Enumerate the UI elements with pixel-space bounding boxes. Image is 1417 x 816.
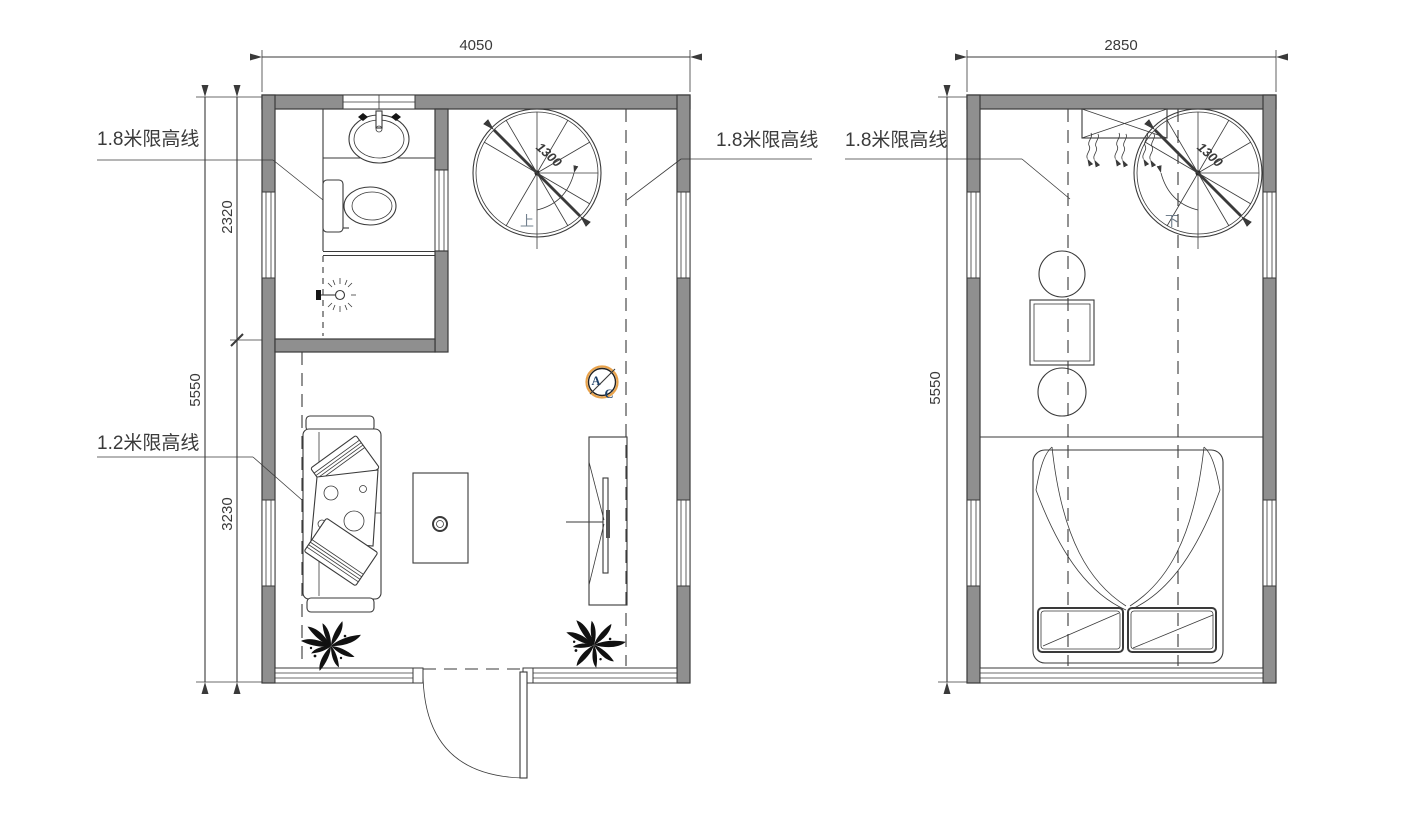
wall-right [1263,95,1276,683]
door-jamb-left [413,668,423,683]
limit-label-12: 1.2米限高线 [97,432,199,454]
wall-right [677,95,690,683]
bed-pillows [1038,608,1216,652]
dim-width: 2850 [1104,37,1137,54]
wall-top [967,95,1276,109]
ac-letter-a: A [591,374,600,388]
window-left-upper [262,192,275,278]
stool [1038,368,1086,416]
window-bottom-left [275,668,413,683]
wall-top [262,95,690,109]
window-left-upper [967,192,980,278]
window-left-lower [262,500,275,586]
bathroom-partition-wall-upper [435,109,448,170]
limit-label-18: 1.8米限高线 [845,129,947,151]
window-bottom-right [533,668,677,683]
window-top [343,95,415,109]
coffee-table [413,473,468,563]
tv-mount [606,510,610,538]
door-leaf [520,672,527,778]
dim-height-upper: 2320 [219,200,236,233]
sofa-armrest-bottom [307,598,374,612]
bathroom-partition-glazing [435,170,448,251]
limit-label-18-left: 1.8米限高线 [97,128,199,150]
window-right-lower [677,500,690,586]
window-right-upper [1263,192,1276,278]
dim-height-lower: 3230 [219,497,236,530]
window-bottom [980,668,1263,683]
dim-height-total: 5550 [187,373,204,406]
paper-background [0,0,1417,816]
floorplan-drawing: 1300 上 [0,0,1417,816]
bed [1033,447,1223,663]
wall-left [967,95,980,683]
stair-direction-down: 下 [1165,213,1179,229]
dim-height-total: 5550 [927,371,944,404]
bathroom-bottom-wall [275,339,435,352]
window-right-lower [1263,500,1276,586]
bathroom-partition-wall-lower [435,251,448,352]
square-table [1030,300,1094,365]
stair-direction-up: 上 [520,213,534,229]
window-left-lower [967,500,980,586]
faucet-icon [376,111,382,128]
sofa [303,416,381,612]
floorplan-sheet: 1300 上 [0,0,1417,816]
stool [1039,251,1085,297]
window-right-upper [677,192,690,278]
ac-letter-c: C [604,387,613,401]
tea-table-set [1030,251,1094,416]
limit-label-18-right: 1.8米限高线 [716,129,818,151]
wall-left [262,95,275,683]
dim-width: 4050 [459,37,492,54]
closet [1082,109,1167,138]
